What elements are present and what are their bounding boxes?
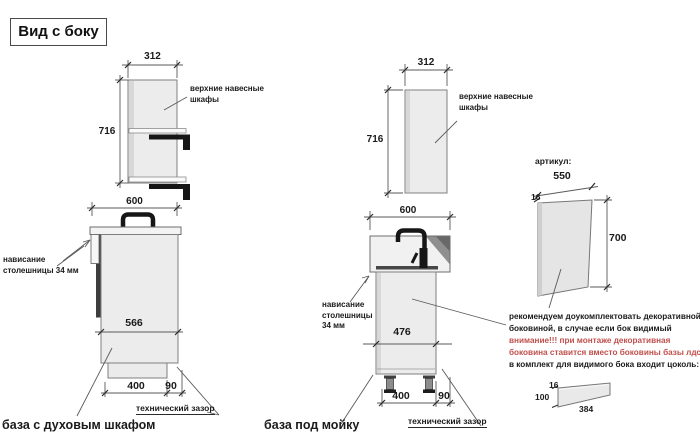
note-line-4-warning: боковина ставится вместо боковины базы л…: [509, 347, 700, 359]
dim-sink-base-width: 600: [366, 205, 450, 216]
label-oven-tech-gap: технический зазор: [136, 403, 215, 415]
dim-oven-gap: 90: [160, 380, 182, 392]
plinth: [108, 363, 167, 378]
sink-base-cabinet-shape: [370, 231, 450, 394]
oven-handle: [123, 215, 153, 229]
mid-upper-cabinet-shape: [405, 90, 447, 193]
dim-plinth-length: 384: [579, 404, 593, 414]
label-left-upper-cabinets: верхние навесные шкафы: [190, 84, 280, 105]
note-line-1: рекомендуем доукомплектовать декоративно…: [509, 311, 700, 323]
label-mid-upper-cabinets: верхние навесные шкафы: [459, 92, 549, 113]
label-article: артикул:: [535, 156, 571, 166]
side-view-drawing-page: Вид с боку 312 716 верхние навесные шкаф…: [0, 0, 700, 438]
dim-plinth-height: 100: [535, 392, 549, 402]
note-line-5: в комплект для видимого бока входит цоко…: [509, 359, 699, 371]
dim-left-upper-height: 716: [96, 126, 118, 137]
label-sink-base-name: база под мойку: [264, 418, 359, 432]
view-title-box: Вид с боку: [10, 18, 107, 46]
note-line-3-warning: внимание!!! при монтаже декоративная: [509, 335, 670, 347]
dim-panel-height: 700: [609, 232, 627, 244]
dim-panel-thickness: 16: [531, 192, 540, 202]
label-oven-base-name: база с духовым шкафом: [2, 418, 155, 432]
page-title: Вид с боку: [18, 23, 99, 40]
dim-sink-depth: 476: [366, 326, 438, 338]
drawing-linework: [0, 0, 700, 438]
note-line-2: боковиной, в случае если бок видимый: [509, 323, 672, 335]
dim-oven-depth: 566: [94, 317, 174, 329]
countertop: [90, 227, 181, 235]
dim-sink-gap: 90: [434, 390, 454, 402]
dim-oven-front: 400: [106, 380, 166, 392]
decorative-side-panel-shape: [538, 200, 592, 296]
oven-base-cabinet-shape: [90, 215, 181, 379]
left-upper-cabinet-shape: [128, 80, 190, 200]
label-oven-overhang: нависание столешницы 34 мм: [3, 255, 79, 276]
dim-panel-width: 550: [542, 170, 582, 182]
dim-mid-upper-height: 716: [364, 134, 386, 145]
dim-mid-upper-width: 312: [405, 57, 447, 68]
dim-oven-base-width: 600: [92, 196, 177, 207]
label-sink-tech-gap: технический зазор: [408, 416, 487, 428]
dim-left-upper-width: 312: [128, 51, 177, 62]
dim-plinth-thickness: 16: [549, 380, 558, 390]
dim-sink-front: 400: [373, 390, 429, 402]
